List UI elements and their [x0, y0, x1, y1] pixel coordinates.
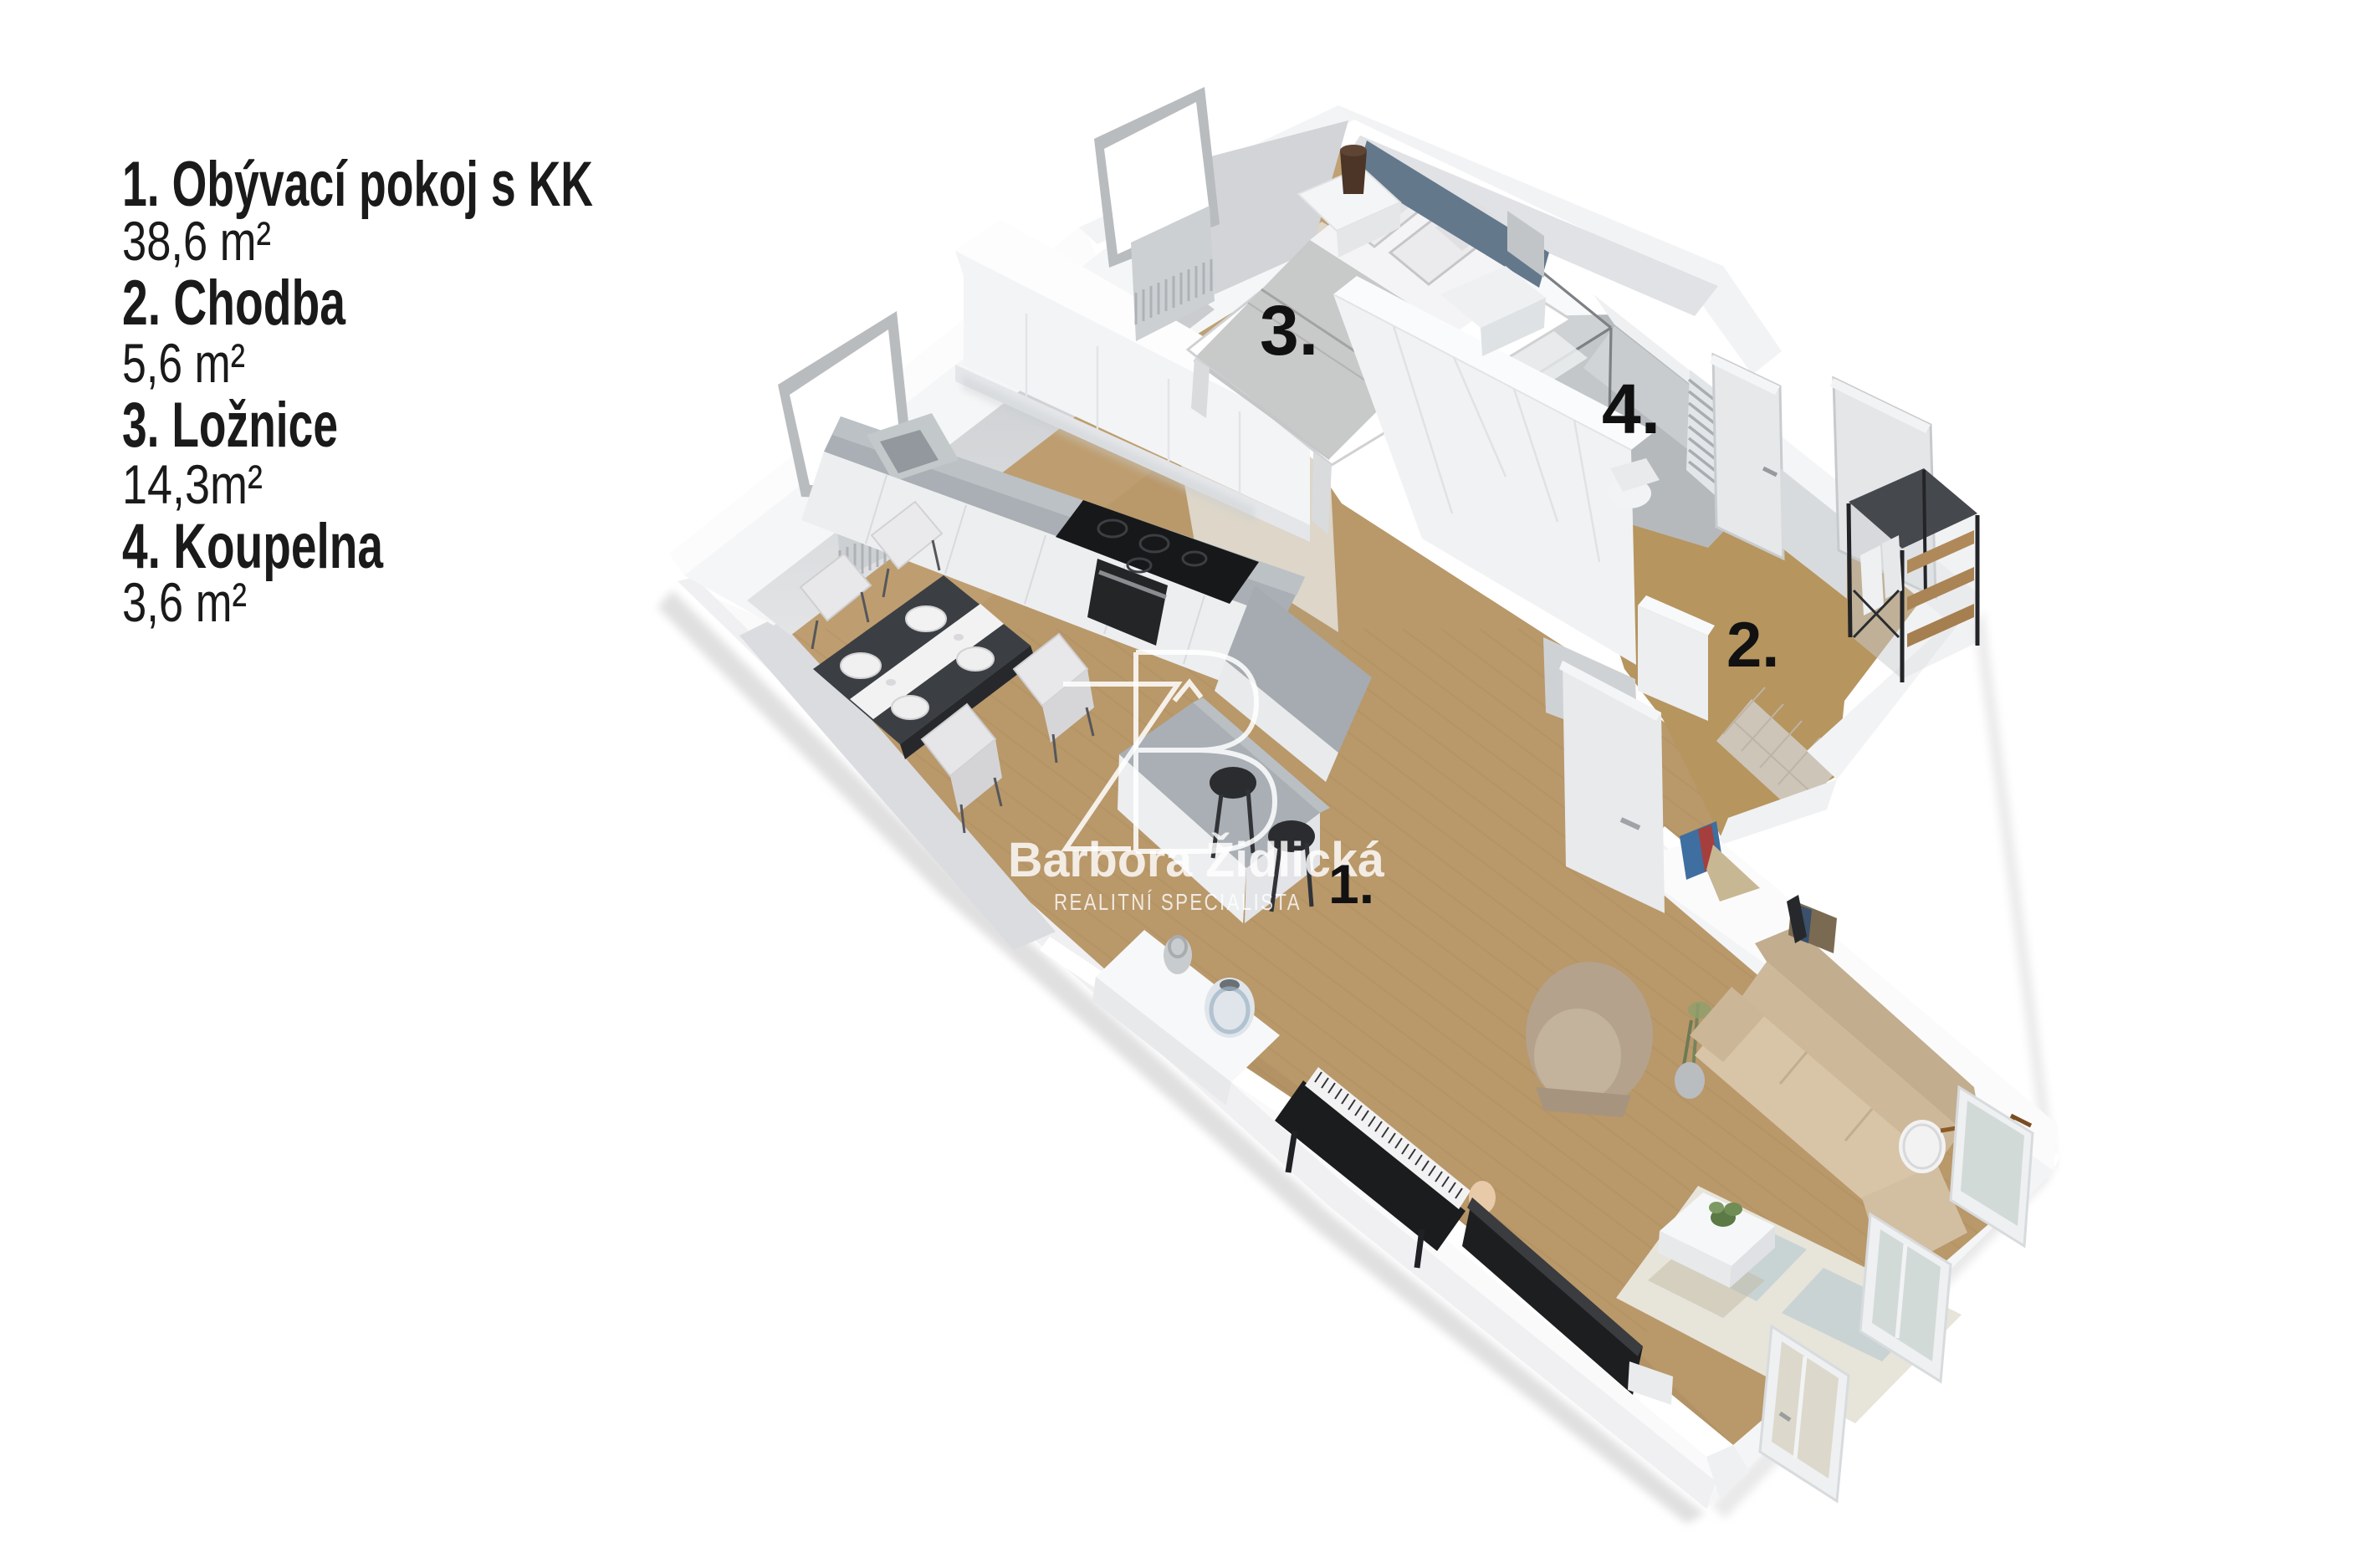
svg-text:4.: 4.	[1602, 370, 1660, 448]
svg-text:3.: 3.	[1260, 291, 1318, 370]
svg-text:5,6 m²: 5,6 m²	[122, 332, 245, 394]
svg-text:2.: 2.	[1726, 610, 1779, 681]
svg-text:2. Chodba: 2. Chodba	[122, 268, 346, 339]
svg-text:38,6 m²: 38,6 m²	[122, 210, 271, 272]
svg-text:REALITNÍ SPECIALISTA: REALITNÍ SPECIALISTA	[1054, 889, 1302, 915]
svg-text:14,3m²: 14,3m²	[122, 453, 263, 515]
svg-text:3. Ložnice: 3. Ložnice	[122, 390, 338, 461]
svg-text:1.: 1.	[1328, 853, 1374, 915]
svg-text:3,6 m²: 3,6 m²	[122, 571, 247, 633]
